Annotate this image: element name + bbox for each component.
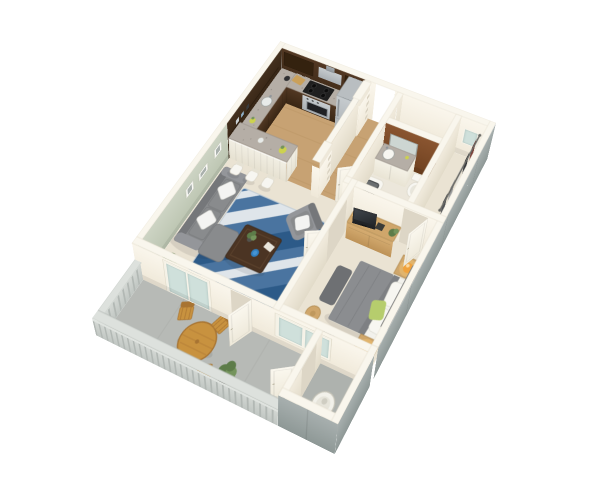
wall-top-layer — [88, 41, 496, 424]
apartment-plan — [96, 78, 487, 454]
floor-plan-render — [0, 0, 600, 495]
wall-tops — [88, 41, 496, 424]
scene-3d — [0, 0, 600, 495]
